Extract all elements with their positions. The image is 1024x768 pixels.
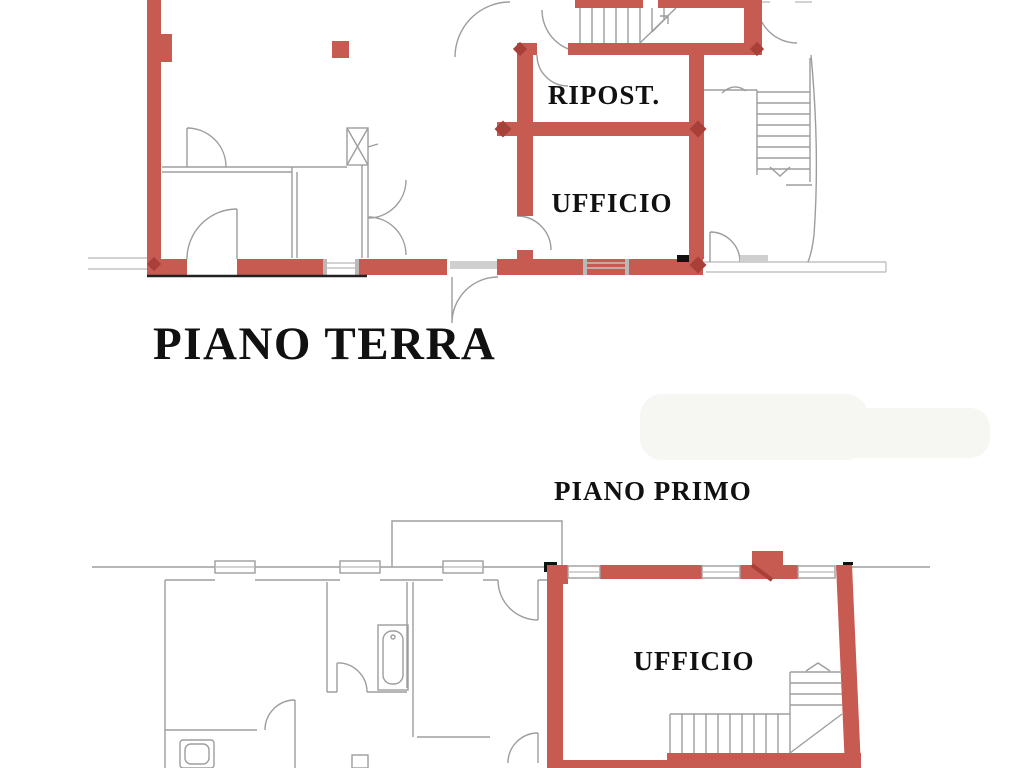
stairwell-gray-stairs [703,55,816,262]
office-internal-stairs [670,663,842,753]
first-floor-windows-gray [215,561,483,573]
floor-plan-page: RIPOST. UFFICIO PIANO TERRA PIANO PRIMO [0,0,1024,768]
ground-office-room-label: UFFICIO [552,188,673,218]
floor-plan-drawing: RIPOST. UFFICIO PIANO TERRA PIANO PRIMO [0,0,1024,768]
first-floor-gray-building [92,521,930,768]
red-stair-room-treads [580,8,676,43]
faint-blob [640,394,990,460]
ground-context-lines [88,2,886,272]
ground-red-walls [147,0,762,275]
ground-partitions [162,165,368,258]
first-floor-plan: PIANO PRIMO [92,394,990,768]
first-office-room-label: UFFICIO [634,646,755,676]
ground-floor-plan: RIPOST. UFFICIO PIANO TERRA [88,0,886,370]
ground-wall-accents [147,42,764,274]
ground-floor-title: PIANO TERRA [153,318,496,370]
shaft-box [347,128,378,165]
ground-corner-mark [677,255,689,262]
first-floor-title: PIANO PRIMO [554,476,752,506]
bathroom-fixtures [180,625,408,768]
ground-storage-room-label: RIPOST. [548,80,660,110]
